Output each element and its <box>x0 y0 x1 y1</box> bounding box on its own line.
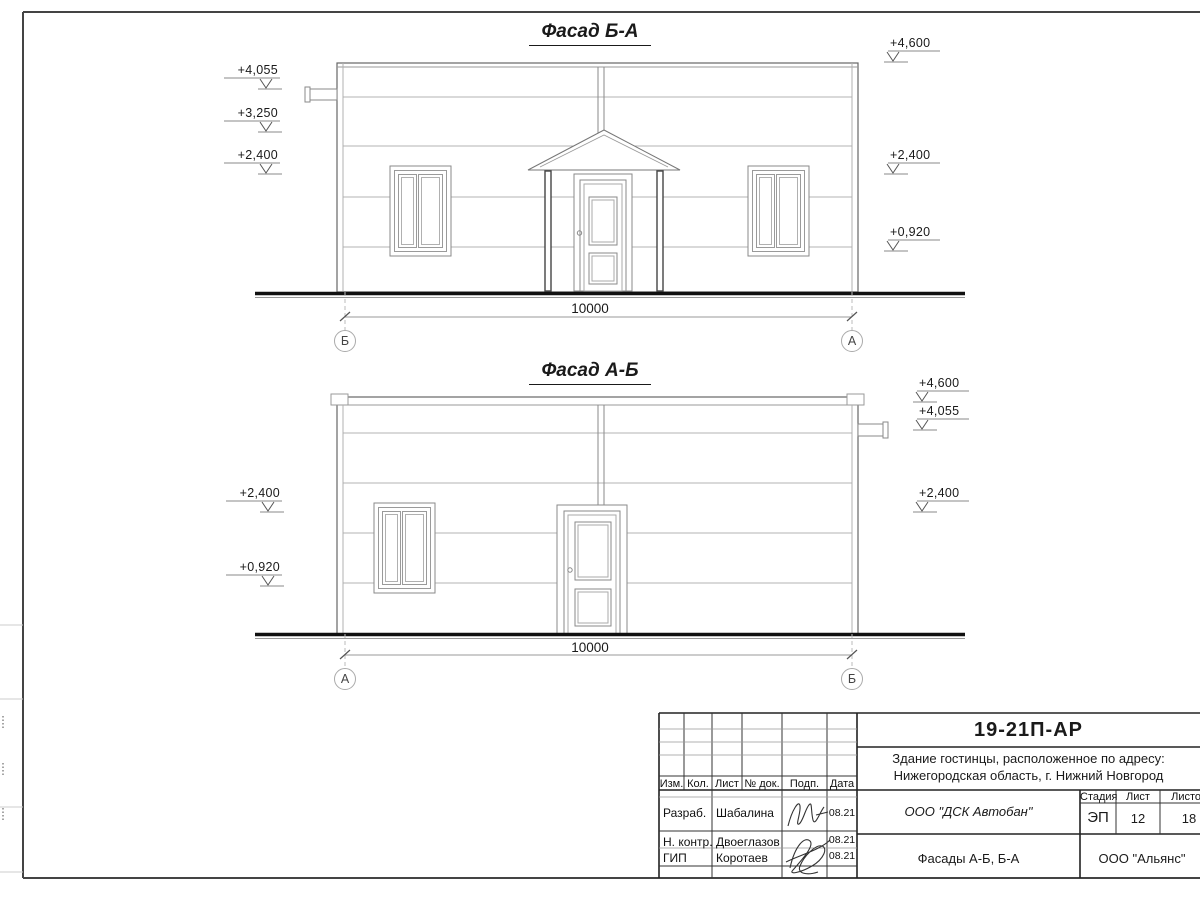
elevation-mark: +2,400 <box>202 486 280 500</box>
elevation-mark: +0,920 <box>202 560 280 574</box>
facade-ab-title: Фасад А-Б <box>470 360 710 385</box>
elevation-mark: +4,055 <box>919 404 959 418</box>
role-label: ГИП <box>663 851 687 865</box>
sheet-number: 12 <box>1116 811 1160 826</box>
design-company: ООО "ДСК Автобан" <box>857 804 1080 819</box>
sheets-total: 18 <box>1160 811 1200 826</box>
col-header: Изм. <box>659 778 684 790</box>
role-label: Разраб. <box>663 806 706 820</box>
drawing-canvas: Фасад Б-А +4,055 +3,250 +2,400 +4,600 +2… <box>0 0 1200 900</box>
elevation-mark: +3,250 <box>200 106 278 120</box>
col-header: Кол. <box>684 778 712 790</box>
dimension-label: 10000 <box>540 301 640 316</box>
project-address-line1: Здание гостинцы, расположенное по адресу… <box>857 751 1200 766</box>
entrance-door <box>574 174 632 291</box>
axis-marker: А <box>334 669 356 690</box>
person-name: Двоеглазов <box>716 835 780 849</box>
sheets-label: Листов <box>1160 791 1200 803</box>
elevation-mark: +4,055 <box>200 63 278 77</box>
sheet-title: Фасады А-Б, Б-А <box>857 851 1080 866</box>
stage-label: Стадия <box>1080 791 1116 803</box>
elevation-mark: +2,400 <box>890 148 930 162</box>
date-cell: 08.21 <box>827 834 857 846</box>
facade-ba-title: Фасад Б-А <box>470 21 710 46</box>
col-header: Дата <box>827 778 857 790</box>
elevation-mark: +4,600 <box>919 376 959 390</box>
date-cell: 08.21 <box>827 850 857 862</box>
person-name: Коротаев <box>716 851 768 865</box>
axis-marker: Б <box>334 331 356 352</box>
role-label: Н. контр. <box>663 835 713 849</box>
col-header: Подп. <box>782 778 827 790</box>
document-number: 19-21П-АР <box>857 719 1200 742</box>
elevation-mark: +4,600 <box>890 36 930 50</box>
client-org: ООО "Альянс" <box>1080 851 1200 866</box>
elevation-mark: +0,920 <box>890 225 930 239</box>
date-cell: 08.21 <box>827 807 857 819</box>
dimension-label: 10000 <box>540 640 640 655</box>
axis-marker: А <box>841 331 863 352</box>
stage-value: ЭП <box>1080 809 1116 826</box>
col-header: Лист <box>712 778 742 790</box>
axis-marker: Б <box>841 669 863 690</box>
project-address-line2: Нижегородская область, г. Нижний Новгоро… <box>857 768 1200 783</box>
signature-marks <box>786 804 830 874</box>
col-header: № док. <box>742 778 782 790</box>
person-name: Шабалина <box>716 806 774 820</box>
elevation-mark: +2,400 <box>919 486 959 500</box>
elevation-mark: +2,400 <box>200 148 278 162</box>
rear-door <box>557 505 627 634</box>
sheet-label: Лист <box>1116 791 1160 803</box>
